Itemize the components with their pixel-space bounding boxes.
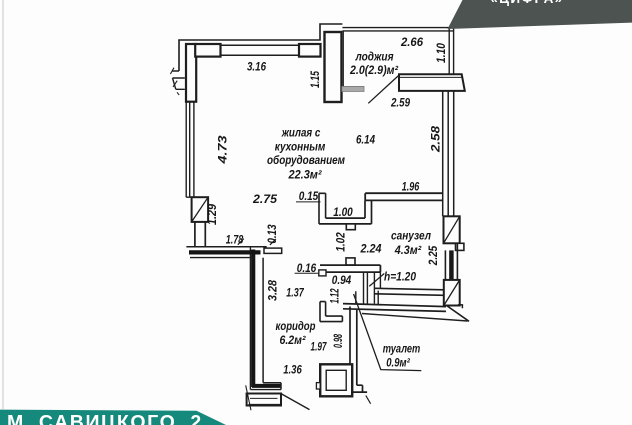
svg-text:жилая с: жилая с xyxy=(281,126,321,140)
svg-text:туалет: туалет xyxy=(383,342,421,356)
svg-text:М. САВИЦКОГО, 2: М. САВИЦКОГО, 2 xyxy=(7,412,203,425)
svg-text:3.28: 3.28 xyxy=(268,279,280,301)
svg-text:1.29: 1.29 xyxy=(207,203,219,225)
svg-text:«ЦИФРА»: «ЦИФРА» xyxy=(490,0,563,6)
svg-text:2.0(2.9)м²: 2.0(2.9)м² xyxy=(349,63,399,77)
svg-text:0.13: 0.13 xyxy=(267,224,279,244)
svg-text:2.75: 2.75 xyxy=(252,194,278,206)
svg-text:кухонным: кухонным xyxy=(275,140,326,154)
svg-text:3.16: 3.16 xyxy=(247,62,267,74)
svg-text:0.98: 0.98 xyxy=(333,334,345,348)
svg-text:2.66: 2.66 xyxy=(400,37,424,49)
svg-text:1.15: 1.15 xyxy=(310,71,322,88)
svg-text:лоджия: лоджия xyxy=(355,50,394,64)
svg-text:0.9м²: 0.9м² xyxy=(386,356,410,370)
svg-text:4.73: 4.73 xyxy=(218,135,230,165)
svg-text:1.02: 1.02 xyxy=(336,232,348,252)
svg-text:2.59: 2.59 xyxy=(390,98,410,110)
svg-text:1.97: 1.97 xyxy=(311,342,327,354)
svg-text:2.58: 2.58 xyxy=(431,125,443,153)
svg-text:1.36: 1.36 xyxy=(283,365,302,377)
svg-text:1.00: 1.00 xyxy=(333,207,353,219)
svg-text:санузел: санузел xyxy=(391,229,431,243)
svg-text:6.2м²: 6.2м² xyxy=(280,333,307,347)
svg-text:2.25: 2.25 xyxy=(428,245,440,266)
svg-text:6.14: 6.14 xyxy=(356,135,376,147)
svg-text:2.24: 2.24 xyxy=(360,244,382,256)
svg-text:1.96: 1.96 xyxy=(402,182,420,194)
svg-text:0.94: 0.94 xyxy=(332,275,352,287)
svg-text:оборудованием: оборудованием xyxy=(267,153,345,167)
svg-text:4.3м²: 4.3м² xyxy=(394,243,422,257)
svg-text:1.37: 1.37 xyxy=(286,288,304,300)
svg-text:0.16: 0.16 xyxy=(297,263,317,275)
svg-text:22.3м²: 22.3м² xyxy=(288,168,323,182)
svg-text:h=1.20: h=1.20 xyxy=(384,272,417,284)
svg-text:0.15: 0.15 xyxy=(299,191,319,203)
svg-text:1.78: 1.78 xyxy=(226,235,244,247)
svg-text:1.10: 1.10 xyxy=(436,42,448,63)
svg-text:коридор: коридор xyxy=(276,319,316,333)
svg-text:1.12: 1.12 xyxy=(330,288,342,303)
